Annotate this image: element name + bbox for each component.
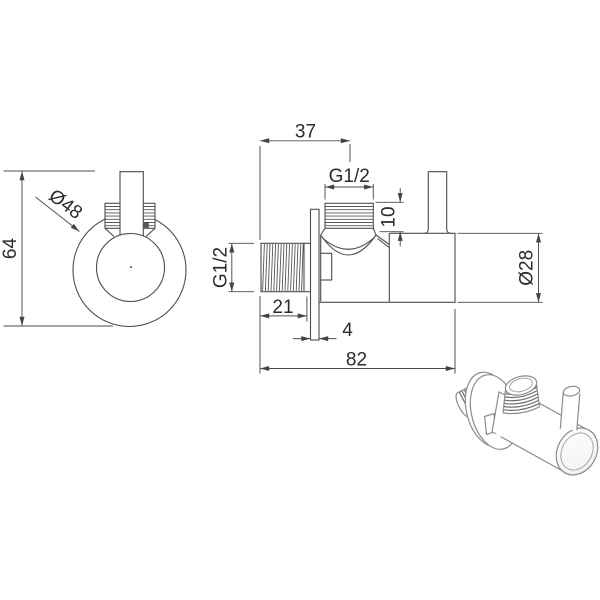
dim-diameter-48-label: Ø48: [45, 185, 86, 223]
dim-21: 21: [260, 297, 307, 322]
thread-step-detail: [144, 223, 149, 228]
inlet-thread: [261, 243, 304, 291]
technical-drawing-page: 64 Ø48: [0, 0, 600, 600]
dim-21-label: 21: [272, 297, 293, 318]
section-view: 37 G1/2 10 G1/2 21: [211, 122, 543, 374]
dim-10-label: 10: [379, 206, 400, 227]
dim-g12-inlet: G1/2: [211, 243, 255, 291]
valve-neck: [321, 228, 390, 302]
dim-diameter-48: Ø48: [36, 185, 86, 231]
dim-64-label: 64: [0, 238, 21, 260]
dim-4-label: 4: [342, 320, 353, 341]
iso-handle-pin: [560, 385, 580, 430]
dim-82-label: 82: [346, 350, 367, 371]
front-view: 64 Ø48: [0, 171, 186, 327]
dim-37-label: 37: [295, 122, 316, 143]
bonnet-nut-detail: [321, 253, 332, 280]
thread-shank: [304, 243, 311, 291]
top-port-thread: [325, 203, 373, 228]
dim-4: 4: [293, 320, 353, 341]
wall-flange-plate: [311, 209, 320, 340]
isometric-view: [453, 367, 600, 482]
dim-diameter-28: Ø28: [458, 233, 543, 302]
center-mark: [130, 266, 132, 268]
dim-g12-top-label: G1/2: [329, 166, 370, 187]
dim-g12-inlet-label: G1/2: [211, 247, 232, 288]
dim-diameter-28-label: Ø28: [517, 250, 538, 286]
dim-g12-top: G1/2: [325, 166, 373, 200]
front-handle-stem: [120, 172, 143, 236]
iso-top-port: [503, 373, 540, 416]
side-handle-stem: [425, 172, 451, 234]
angle-valve-drawing: 64 Ø48: [0, 0, 600, 600]
valve-body-outline: [319, 233, 455, 302]
